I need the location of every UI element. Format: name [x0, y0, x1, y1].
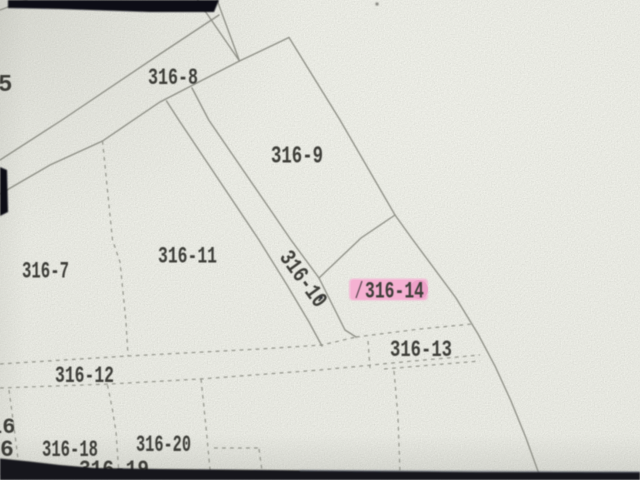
svg-text:5: 5: [0, 72, 12, 99]
svg-text:316-8: 316-8: [148, 65, 198, 91]
svg-text:316-14: 316-14: [365, 279, 424, 305]
svg-text:316-9: 316-9: [271, 144, 323, 171]
svg-text:316-12: 316-12: [55, 363, 114, 389]
svg-text:316-11: 316-11: [158, 244, 217, 271]
svg-text:316-7: 316-7: [22, 259, 69, 286]
svg-text:316-13: 316-13: [390, 337, 452, 363]
svg-text:316-20: 316-20: [136, 432, 191, 458]
svg-text:16: 16: [0, 415, 15, 440]
